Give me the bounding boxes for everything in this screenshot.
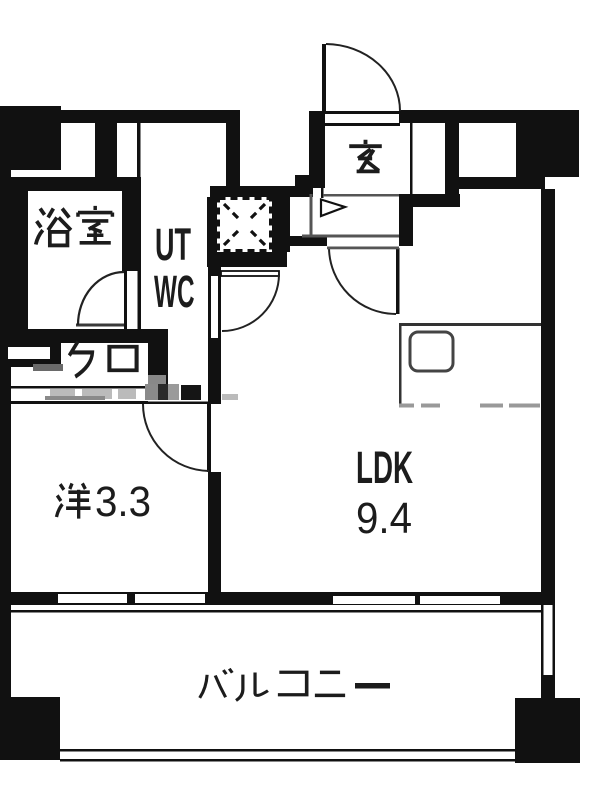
- svg-text:UT: UT: [155, 219, 191, 270]
- svg-text:3.3: 3.3: [95, 478, 151, 526]
- svg-text:LDK: LDK: [356, 442, 413, 493]
- svg-text:9.4: 9.4: [356, 494, 412, 543]
- svg-text:WC: WC: [154, 266, 195, 317]
